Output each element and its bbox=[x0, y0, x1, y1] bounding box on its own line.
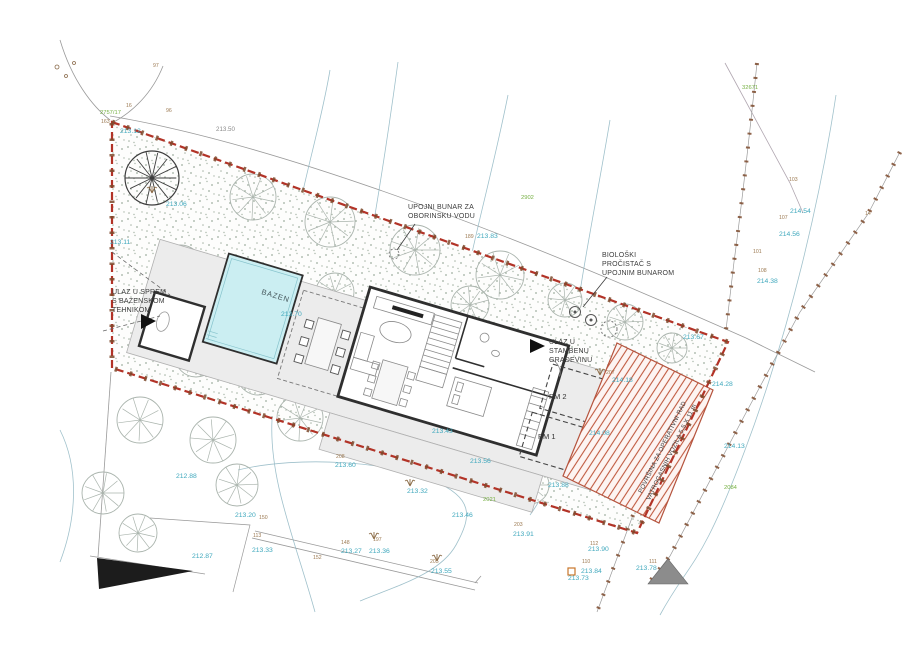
elevation-label: 213.46 bbox=[452, 512, 473, 519]
elevation-label: 214.54 bbox=[790, 208, 811, 215]
elevation-label: 213.60 bbox=[335, 462, 356, 469]
elevation-label: 213.12 bbox=[120, 128, 141, 135]
elevation-label: 213.11 bbox=[110, 239, 131, 246]
point-number-label: 110 bbox=[582, 559, 590, 565]
elevation-label: 213.06 bbox=[166, 201, 187, 208]
bio-purifier-label: UPOJNIM BUNAROM bbox=[602, 270, 674, 277]
parcel-number-label: 32671 bbox=[742, 85, 758, 91]
point-number-label: 150 bbox=[259, 515, 268, 521]
point-number-label: 148 bbox=[341, 540, 350, 546]
elevation-label: 213.36 bbox=[369, 548, 390, 555]
parcel-number-label: 2021 bbox=[483, 497, 496, 503]
rain-well-label: UPOJNI BUNAR ZA bbox=[408, 204, 474, 211]
site-plan-page: UPOJNI BUNAR ZA OBORINSKU VODU BIOLOŠKI … bbox=[0, 0, 919, 650]
house-entrance-label: GRAĐEVINU bbox=[549, 357, 592, 364]
point-number-label: 205 bbox=[430, 559, 439, 565]
elevation-label: 213.33 bbox=[252, 547, 273, 554]
point-number-label: 113 bbox=[253, 533, 261, 539]
elevation-label: 213.73 bbox=[568, 575, 589, 582]
site-plan-drawing: UPOJNI BUNAR ZA OBORINSKU VODU BIOLOŠKI … bbox=[0, 0, 919, 650]
elevation-label: 213.83 bbox=[477, 233, 498, 240]
elevation-label: 214.13 bbox=[724, 443, 745, 450]
elevation-label: 213.20 bbox=[235, 512, 256, 519]
elevation-label: 213.84 bbox=[581, 568, 602, 575]
parcel-number-label: 2757/17 bbox=[100, 110, 121, 116]
point-number-label: 112 bbox=[590, 541, 598, 547]
elevation-label: 214.08 bbox=[589, 430, 610, 437]
point-number-label: 16 bbox=[126, 103, 132, 109]
point-number-label: 207 bbox=[606, 370, 615, 376]
point-number-label: 101 bbox=[753, 249, 762, 255]
elevation-label: 213.91 bbox=[513, 531, 534, 538]
elevation-label: 213.78 bbox=[636, 565, 657, 572]
house-entrance-label: ULAZ U bbox=[549, 339, 575, 346]
elevation-label: 213.55 bbox=[431, 568, 452, 575]
elevation-label: 213.67 bbox=[683, 334, 704, 341]
parking-2-label: PM 2 bbox=[549, 392, 567, 401]
pool-entrance-label: ULAZ U SPREM bbox=[112, 289, 166, 296]
misc-label: 213.50 bbox=[216, 126, 235, 133]
point-number-label: 111 bbox=[649, 559, 657, 565]
point-number-label: 203 bbox=[514, 522, 523, 528]
point-number-label: 103 bbox=[789, 177, 798, 183]
elevation-label: 214.56 bbox=[779, 231, 800, 238]
elevation-label: 213.27 bbox=[341, 548, 362, 555]
parcel-number-label: 2902 bbox=[521, 195, 534, 201]
house-entrance-label: STAMBENU bbox=[549, 348, 589, 355]
bio-purifier-label: BIOLOŠKI bbox=[602, 250, 636, 259]
point-number-label: 97 bbox=[153, 63, 159, 69]
elevation-label: 213.32 bbox=[407, 488, 428, 495]
point-number-label: 14 bbox=[865, 211, 871, 217]
elevation-label: 213.90 bbox=[588, 546, 609, 553]
point-number-label: 107 bbox=[779, 215, 788, 221]
pool-entrance-label: S BAZENSKOM bbox=[112, 298, 165, 305]
point-number-label: 189 bbox=[465, 234, 474, 240]
elevation-label: 214.28 bbox=[712, 381, 733, 388]
parking-1-label: PM 1 bbox=[538, 432, 556, 441]
elevation-label: 212.87 bbox=[192, 553, 213, 560]
pool-entrance-label: TEHNIKOM bbox=[112, 307, 151, 314]
elevation-label: 212.88 bbox=[176, 473, 197, 480]
point-number-label: 163 bbox=[101, 119, 110, 125]
point-number-label: 208 bbox=[336, 454, 345, 460]
rain-well-label: OBORINSKU VODU bbox=[408, 213, 475, 220]
elevation-label: 214.38 bbox=[757, 278, 778, 285]
elevation-label: 213.88 bbox=[548, 482, 569, 489]
parcel-number-label: 2084 bbox=[724, 485, 738, 491]
point-number-label: 152 bbox=[313, 555, 322, 561]
elevation-label: 213.43 bbox=[432, 428, 453, 435]
elevation-label: 213.56 bbox=[470, 458, 491, 465]
elevation-label: 213.70 bbox=[281, 311, 302, 318]
bio-purifier-label: PROČISTAČ S bbox=[602, 259, 651, 268]
marker-square bbox=[568, 568, 575, 575]
point-number-label: 108 bbox=[758, 268, 767, 274]
point-number-label: 197 bbox=[373, 537, 382, 543]
point-number-label: 96 bbox=[166, 108, 172, 114]
elevation-label: 214.18 bbox=[612, 377, 633, 384]
